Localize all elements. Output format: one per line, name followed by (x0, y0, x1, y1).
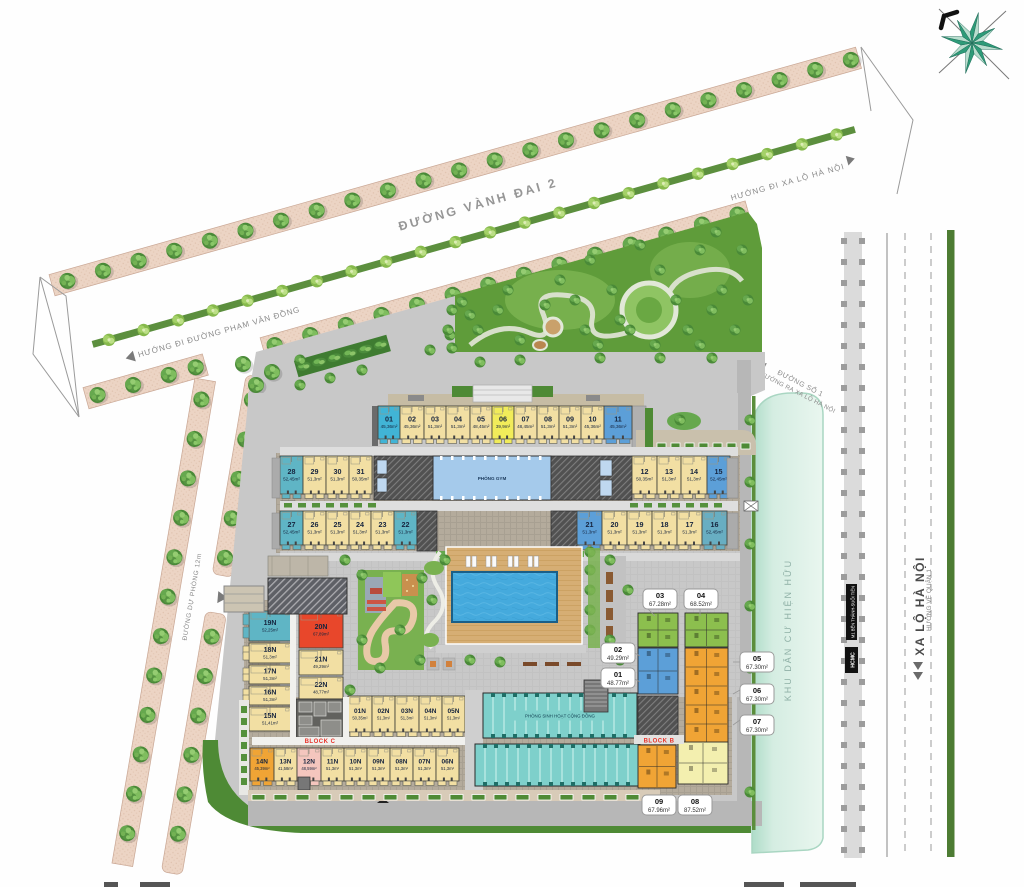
svg-text:52,25m²: 52,25m² (262, 628, 279, 633)
svg-text:20N: 20N (315, 624, 328, 631)
svg-text:52,45m²: 52,45m² (706, 530, 723, 535)
svg-text:50,35m²: 50,35m² (636, 477, 653, 482)
svg-text:50,35m²: 50,35m² (352, 477, 369, 482)
svg-text:11: 11 (614, 415, 622, 424)
svg-text:51,3m²: 51,3m² (447, 716, 461, 721)
svg-text:KHU DÂN CƯ HIỆN HỮU: KHU DÂN CƯ HIỆN HỮU (783, 559, 793, 701)
svg-text:12: 12 (641, 467, 649, 476)
svg-text:07: 07 (522, 415, 530, 424)
svg-text:23: 23 (379, 520, 387, 529)
svg-text:05: 05 (477, 415, 485, 424)
svg-text:06: 06 (753, 686, 761, 695)
svg-text:10: 10 (589, 415, 597, 424)
svg-text:51,3m²: 51,3m² (682, 530, 697, 535)
svg-text:04: 04 (697, 591, 706, 600)
svg-text:07N: 07N (419, 759, 431, 766)
svg-text:04: 04 (454, 415, 462, 424)
svg-text:68.52m²: 68.52m² (690, 602, 712, 608)
svg-text:01N: 01N (354, 708, 366, 715)
svg-text:52,45m²: 52,45m² (283, 530, 300, 535)
svg-text:16: 16 (711, 520, 719, 529)
svg-text:51,3m²: 51,3m² (263, 697, 277, 702)
svg-text:03N: 03N (401, 708, 413, 715)
svg-text:09: 09 (655, 797, 663, 806)
svg-text:51,3m²: 51,3m² (307, 477, 322, 482)
svg-text:24: 24 (356, 520, 364, 529)
svg-text:29: 29 (311, 467, 319, 476)
svg-text:05N: 05N (448, 708, 460, 715)
svg-text:22: 22 (402, 520, 410, 529)
svg-text:20: 20 (611, 520, 619, 529)
svg-text:26: 26 (311, 520, 319, 529)
svg-text:51,3m²: 51,3m² (263, 655, 277, 660)
svg-text:25: 25 (334, 520, 342, 529)
svg-text:14N: 14N (256, 759, 268, 766)
svg-text:09: 09 (566, 415, 574, 424)
svg-text:08N: 08N (396, 759, 408, 766)
svg-text:52,45m²: 52,45m² (283, 477, 300, 482)
svg-text:06N: 06N (442, 759, 454, 766)
svg-text:67.28m²: 67.28m² (649, 602, 671, 608)
svg-text:03: 03 (431, 415, 439, 424)
svg-text:39,9m²: 39,9m² (496, 424, 511, 429)
svg-text:67.30m²: 67.30m² (746, 728, 768, 734)
svg-text:31: 31 (357, 467, 365, 476)
svg-text:10N: 10N (350, 759, 362, 766)
svg-text:HCMC: HCMC (851, 652, 857, 668)
svg-text:51,3m²: 51,3m² (541, 424, 556, 429)
svg-text:51,3m²: 51,3m² (428, 424, 443, 429)
svg-text:02: 02 (614, 645, 622, 654)
svg-text:51,3m²: 51,3m² (375, 530, 390, 535)
svg-text:08: 08 (544, 415, 552, 424)
svg-text:48,45m²: 48,45m² (473, 424, 490, 429)
svg-text:45,36m²: 45,36m² (610, 424, 627, 429)
svg-text:30: 30 (334, 467, 342, 476)
svg-text:11N: 11N (327, 759, 339, 766)
svg-text:51,3m²: 51,3m² (632, 530, 647, 535)
svg-text:51,3m²: 51,3m² (418, 766, 432, 771)
svg-text:04N: 04N (425, 708, 437, 715)
svg-text:41,58m²: 41,58m² (278, 766, 294, 771)
svg-text:51,3m²: 51,3m² (330, 530, 345, 535)
svg-text:28: 28 (288, 467, 296, 476)
svg-text:51,3m²: 51,3m² (657, 530, 672, 535)
svg-text:51,3m²: 51,3m² (441, 766, 455, 771)
svg-text:45,36m²: 45,36m² (381, 424, 398, 429)
svg-text:18: 18 (661, 520, 669, 529)
svg-text:15: 15 (715, 467, 723, 476)
svg-text:01: 01 (614, 670, 622, 679)
svg-text:50,35m²: 50,35m² (352, 716, 368, 721)
svg-text:67,89m²: 67,89m² (313, 632, 330, 637)
svg-text:48,59m²: 48,59m² (301, 766, 317, 771)
svg-text:15N: 15N (264, 713, 277, 720)
svg-text:51,3m²: 51,3m² (326, 766, 340, 771)
svg-text:XA LỘ HÀ NỘI: XA LỘ HÀ NỘI (912, 556, 927, 656)
svg-text:BLOCK C: BLOCK C (305, 739, 336, 745)
svg-text:19: 19 (636, 520, 644, 529)
svg-text:BLOCK B: BLOCK B (644, 739, 675, 745)
svg-text:51,3m²: 51,3m² (424, 716, 438, 721)
svg-text:51,3m²: 51,3m² (330, 477, 345, 482)
svg-text:27: 27 (288, 520, 296, 529)
svg-text:51,3m²: 51,3m² (451, 424, 466, 429)
svg-text:17: 17 (686, 520, 694, 529)
svg-text:07: 07 (753, 717, 761, 726)
svg-text:08: 08 (691, 797, 699, 806)
svg-text:PHÒNG SINH HOẠT CỘNG ĐỒNG: PHÒNG SINH HOẠT CỘNG ĐỒNG (525, 714, 596, 719)
svg-text:48,77m²: 48,77m² (313, 690, 330, 695)
svg-text:49,29m²: 49,29m² (313, 664, 330, 669)
svg-text:13N: 13N (280, 759, 292, 766)
svg-text:51,3m²: 51,3m² (349, 766, 363, 771)
svg-text:02: 02 (408, 415, 416, 424)
svg-text:49.29m²: 49.29m² (607, 656, 629, 662)
svg-text:87.52m²: 87.52m² (684, 808, 706, 814)
svg-text:PHÒNG GYM: PHÒNG GYM (478, 474, 507, 481)
svg-text:48,45m²: 48,45m² (517, 424, 534, 429)
svg-text:M1 BẾN THÀNH-SUỐI TIÊN: M1 BẾN THÀNH-SUỐI TIÊN (851, 586, 856, 638)
svg-text:51,3m²: 51,3m² (687, 477, 702, 482)
svg-text:51,3m²: 51,3m² (377, 716, 391, 721)
svg-text:45,36m²: 45,36m² (584, 424, 601, 429)
svg-text:51,3m²: 51,3m² (400, 716, 414, 721)
svg-text:21N: 21N (315, 657, 328, 664)
svg-text:05: 05 (753, 654, 761, 663)
svg-text:13: 13 (665, 467, 673, 476)
svg-text:51,3m²: 51,3m² (398, 530, 413, 535)
svg-text:01: 01 (385, 415, 393, 424)
svg-text:12N: 12N (303, 759, 315, 766)
svg-text:02N: 02N (378, 708, 390, 715)
svg-text:52,45m²: 52,45m² (710, 477, 727, 482)
svg-text:51,3m²: 51,3m² (307, 530, 322, 535)
svg-text:67.30m²: 67.30m² (746, 697, 768, 703)
svg-text:45,36m²: 45,36m² (404, 424, 421, 429)
svg-text:19N: 19N (264, 620, 277, 627)
svg-text:51,3m²: 51,3m² (563, 424, 578, 429)
svg-text:14: 14 (690, 467, 698, 476)
svg-text:51,3m²: 51,3m² (353, 530, 368, 535)
svg-text:51,3m²: 51,3m² (607, 530, 622, 535)
svg-text:51,3m²: 51,3m² (395, 766, 409, 771)
svg-text:67.96m²: 67.96m² (648, 808, 670, 814)
svg-text:06: 06 (499, 415, 507, 424)
svg-text:51,3m²: 51,3m² (263, 676, 277, 681)
svg-text:48.77m²: 48.77m² (607, 681, 629, 687)
svg-text:51,3m²: 51,3m² (582, 530, 597, 535)
svg-text:03: 03 (656, 591, 664, 600)
svg-text:21: 21 (586, 520, 594, 529)
svg-text:51,3m²: 51,3m² (662, 477, 677, 482)
svg-text:22N: 22N (315, 682, 328, 689)
svg-text:45,39m²: 45,39m² (254, 766, 270, 771)
svg-text:09N: 09N (373, 759, 385, 766)
svg-text:51,3m²: 51,3m² (372, 766, 386, 771)
svg-text:51,41m²: 51,41m² (262, 721, 279, 726)
svg-text:67.30m²: 67.30m² (746, 665, 768, 671)
